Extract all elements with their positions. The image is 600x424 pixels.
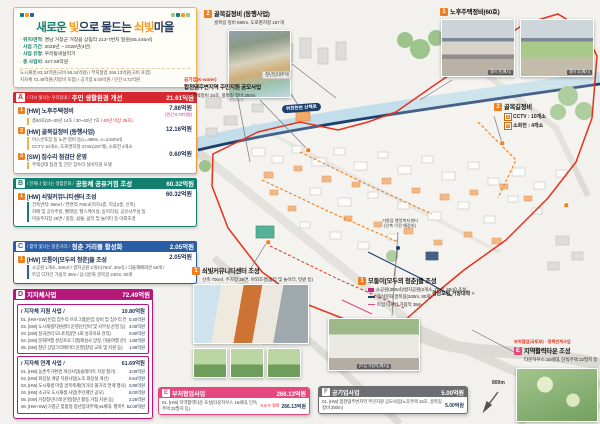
- legend-screen: 트임 디자인 가림막 38m: [368, 302, 466, 308]
- section-c-title: 청춘 거리뜰 활성화: [72, 242, 168, 251]
- section-b-total: 60.32억원: [166, 179, 194, 188]
- photo-caption: 정비 전(예시): [488, 70, 513, 75]
- callout-title: 쇠빛커뮤니티센터 조성: [202, 266, 259, 275]
- cctv-icon: C: [505, 114, 511, 120]
- project-row: 01. [HW] 합천댐주변지역 주민지원 공모사업(노후주택 15호, 골목길…: [319, 397, 467, 413]
- section-f-title: 공기업사업: [332, 388, 439, 397]
- facility-row: CCCTV : 10개소: [505, 113, 546, 120]
- d-group-linked: / 지자체 연계 사업 /61.69억원 01. [HW] 농촌주거환경 개선사…: [17, 356, 149, 413]
- item-detail: 건축면적: 950㎡ / 연면적 700㎡(지하1층, 지상2층, 신축)카페 …: [27, 202, 192, 222]
- item-amount: 7.86억원(민간 0.72억원): [165, 106, 192, 117]
- info-period: · 사업 기간: 2025년 ~ 2028년(4년): [20, 44, 190, 51]
- section-a-header: A / 다시 빛나는 우리동네 / 주민 생활환경 개선 21.61억원: [13, 92, 197, 103]
- food-alley-swatch: [368, 296, 375, 298]
- callout-alley-facilities: 2 골목길정비 CCCTV : 10개소 소소화전 : 4개소: [494, 102, 546, 129]
- project-item: 3 [SW] 집수리 점검단 운영 0.60억원 주택상태 점검 및 간단 집수…: [18, 152, 192, 169]
- section-b: B / 언제나 빛나는 생활문화 / 공동체 공유거점 조성 60.32억원 1…: [13, 178, 197, 227]
- item-title: [HW] 모퉁이[모두의 청춘]뜰 조성: [27, 255, 167, 264]
- section-d-total: 72.49억원: [122, 290, 150, 299]
- section-c-tagline: / 활력 빛나는 청춘거리 /: [27, 244, 70, 250]
- admin-center-label: 거창읍 행정복지센터(신축 이전 예정지): [358, 218, 442, 229]
- photo-caption: 정비 후(예시): [567, 70, 592, 75]
- section-f-header: F 공기업사업 5.00억원: [319, 387, 467, 397]
- callout-title: 노후주택정비(60호): [450, 7, 500, 16]
- callout-subtitle: 골목길 정비 590m, 도로명지정 187개: [214, 20, 284, 26]
- hydrant-icon: 소: [505, 123, 511, 129]
- section-c: C / 활력 빛나는 청춘거리 / 청춘 거리뜰 활성화 2.05억원 1 [H…: [13, 241, 197, 284]
- section-d-title: 지자체사업: [27, 290, 120, 299]
- group-name: / 지자체 연계 사업 /: [21, 359, 65, 367]
- park-swatch: [368, 288, 374, 292]
- section-b-tagline: / 언제나 빛나는 생활문화 /: [27, 181, 74, 187]
- section-e-title: 부처협업사업: [172, 389, 275, 398]
- section-c-header: C / 활력 빛나는 청춘거리 / 청춘 거리뜰 활성화 2.05억원: [13, 241, 197, 252]
- callout-alley-improvement: 2 골목길정비 (동행사업) 골목길 정비 590m, 도로명지정 187개: [204, 9, 284, 26]
- callout-number: 1: [192, 267, 200, 275]
- group-name: / 지자체 지원 사업 /: [21, 307, 65, 315]
- budget-breakdown: 도시재생 83.34억원(국비 58.34억원) / 부처협업 266.13억원…: [20, 68, 190, 83]
- housing-after-photo: 정비 후(예시): [520, 19, 594, 77]
- callout-motungi-garden: 1 모퉁이[모두의 청춘]뜰 조성 소공원(300㎡)/쌈지공원(2개소, 78…: [358, 276, 466, 308]
- item-detail: 주택상태 점검 및 간단 집수리 실비지원 모델: [27, 162, 192, 169]
- callout-subtitle: 신축 700㎡, 주차장 25면, 야외조경(쉼터 및 놀이터, 텃밭 등): [202, 277, 313, 283]
- village-icon-left: [20, 13, 34, 17]
- section-e-badge: E: [162, 389, 170, 397]
- callout-kwater: 공기업(K-water) 합천댐주변지역 주민지원 공모사업 노후주택정비 15…: [184, 77, 261, 99]
- group-total: 10.80억원: [122, 307, 145, 315]
- screen-swatch: [368, 304, 375, 306]
- ministry-stamp: 국토부 협업: [260, 402, 280, 409]
- landscape-photo: [267, 348, 301, 378]
- group-total: 61.69억원: [122, 359, 145, 367]
- project-item: 1 [HW] 쇠빛커뮤니티센터 조성 60.32억원 건축면적: 950㎡ / …: [18, 192, 192, 222]
- item-number: 1: [18, 193, 25, 200]
- section-f: F 공기업사업 5.00억원 01. [HW] 합천댐주변지역 주민지원 공모사…: [318, 386, 468, 414]
- item-detail: 아스콘포장 등 노면 정비 등(L=498m, A=2,840㎡)CCTV 10…: [27, 137, 192, 151]
- page-title: 새로운 빛으로 물드는 쇠빛마을: [20, 19, 190, 35]
- mural-photo: [트임 가림막(예시)]: [328, 318, 420, 371]
- project-row: 03. [SW] 성과관리 모니터링(연 1회 성과지표 관리)0.80억원: [21, 330, 145, 337]
- project-row: 01. [HW+SW] 빈집 집수리 프로그램(빈집 정비 및 집수리 연계 등…: [21, 316, 145, 323]
- section-f-total: 5.00억원: [441, 388, 464, 397]
- section-d: D 지자체사업 72.49억원 / 지자체 지원 사업 /10.80억원 01.…: [13, 289, 153, 419]
- facility-row: 소소화전 : 4개소: [505, 122, 546, 129]
- item-amount: 0.60억원: [169, 152, 192, 159]
- callout-housing-renewal: 1 노후주택정비(60호): [440, 7, 500, 16]
- callout-title: 골목길정비 (동행사업): [214, 9, 270, 18]
- project-item: 1 [HW] 노후주택정비 7.86억원(민간 0.72억원) 총60호(20~…: [18, 106, 192, 125]
- info-budget: · 총 사업비: 427.68억원: [20, 59, 190, 66]
- callout-number: 2: [494, 103, 502, 111]
- callout-title: 합천댐주변지역 주민지원 공모사업: [184, 83, 261, 91]
- project-row: 05. [SW] 거창청년나래 운영(청년 활동 거점 지원 등)3.25억원: [21, 396, 145, 403]
- vitality-tag: 부처협업(국토부) · 정책연계사업: [514, 339, 597, 345]
- callout-subtitle: 노후주택정비 15호, 골목길 정비 250m: [184, 93, 261, 99]
- item-number: 2: [18, 127, 25, 134]
- project-item: 1 [HW] 모퉁이[모두의 청춘]뜰 조성 2.05억원 소공원 1개소, 3…: [18, 255, 192, 279]
- section-e-total: 266.13억원: [277, 389, 306, 398]
- item-title: [HW] 골목길정비 (동행사업): [27, 127, 164, 136]
- callout-number: 2: [204, 10, 212, 18]
- callout-title: 모퉁이[모두의 청춘]뜰 조성: [368, 276, 436, 285]
- project-row: 05. [SW] 청년 상업크리에이터 운영(창업 교육 및 지원 등)1.80…: [21, 344, 145, 351]
- section-a-tagline: / 다시 빛나는 우리동네 /: [27, 95, 70, 101]
- d-group-support: / 지자체 지원 사업 /10.80억원 01. [HW+SW] 빈집 집수리 …: [17, 304, 149, 354]
- item-amount: 2.05억원: [169, 255, 192, 262]
- title-box: 새로운 빛으로 물드는 쇠빛마을 · 위치/면적: 경남 거창군 거창읍 상림리…: [13, 7, 197, 88]
- vitality-town-aerial: [516, 368, 598, 422]
- callout-number: 1: [358, 277, 366, 285]
- item-title: [HW] 쇠빛커뮤니티센터 조성: [27, 192, 164, 201]
- section-a-badge: A: [16, 93, 25, 102]
- photo-caption: [트임 가림막(예시)]: [357, 364, 391, 369]
- callout-title: 골목길정비: [504, 102, 532, 111]
- project-row: 01. [HW] 농촌주거환경 개선사업(슬레이트 지붕 철거)3.00억원: [21, 368, 145, 375]
- legend-food-alley: 음식문화 골목길(240m, 80개): [368, 294, 466, 300]
- item-title: [SW] 집수리 점검단 운영: [27, 152, 167, 161]
- callout-badge: E: [514, 347, 522, 355]
- project-row: 02. [SW] 도시재생지원센터 운영(인건비 및 사무실 운영 등)4.00…: [21, 323, 145, 330]
- project-row: 04. [HW] 소규모 도시재생 사업(주민제안 공모)8.00억원: [21, 389, 145, 396]
- community-center-render: [193, 284, 309, 344]
- legend-park: 소공원(300㎡)/쌈지공원(2개소, 78㎡, 30㎡) 조성: [368, 287, 466, 293]
- project-row: 03. [HW] 도시재생 마중 골목축제(먹거리·볼거리 연계 행사)0.80…: [21, 382, 145, 389]
- callout-number: 1: [440, 8, 448, 16]
- item-number: 1: [18, 256, 25, 263]
- section-b-badge: B: [16, 179, 25, 188]
- item-amount: 60.32억원: [166, 192, 192, 199]
- section-e: E 부처협업사업 266.13억원 01. [HW] 지역활력타운 조성(타운하…: [158, 387, 310, 415]
- section-a-title: 주민 생활환경 개선: [72, 93, 164, 102]
- callout-subtitle: 타운하우스 16세대, 단독주택 32필지 등: [524, 357, 597, 363]
- section-d-badge: D: [16, 290, 25, 299]
- section-e-header: E 부처협업사업 266.13억원: [159, 388, 309, 398]
- project-row: 01. [HW] 지역활력타운 조성(타운하우스 16세대, 단독주택 32필지…: [159, 398, 309, 414]
- scale-label: 800m: [492, 380, 505, 386]
- project-row: 04. [SW] 문화여행 성장프로그램(해설사 양성, 마을여행 운영 등)1…: [21, 337, 145, 344]
- info-type: · 사업 유형: 우리동네살리기: [20, 51, 190, 58]
- item-detail: 소공원 1개소, 300㎡ / 쌈지공원 2개소(78㎡, 30㎡) / 식물재…: [27, 265, 192, 279]
- section-c-total: 2.05억원: [170, 242, 194, 251]
- landscape-photo: [193, 348, 227, 378]
- section-f-badge: F: [322, 388, 330, 396]
- info-location: · 위치/면적: 경남 거창군 거창읍 상림리 213-7번지 일원(65,44…: [20, 37, 190, 44]
- item-number: 1: [18, 107, 25, 114]
- item-detail: 총60호(20~30년 14호 / 30~40년 7호 / 40년 이상 39호…: [27, 118, 192, 125]
- section-a: A / 다시 빛나는 우리동네 / 주민 생활환경 개선 21.61억원 1 […: [13, 92, 197, 174]
- project-item: 2 [HW] 골목길정비 (동행사업) 12.16억원 아스콘포장 등 노면 정…: [18, 127, 192, 151]
- project-row: 06. [HW+SW] 거창군 맞춤형 청년임대주택(44세대, 행복주택 연계…: [21, 403, 145, 410]
- item-number: 3: [18, 153, 25, 160]
- project-row: 02. [HW] 화장실 개량 지원사업(노후 화장실 개선)0.64억원: [21, 375, 145, 382]
- section-c-badge: C: [16, 242, 25, 251]
- section-b-title: 공동체 공유거점 조성: [76, 179, 165, 188]
- item-amount: 12.16억원: [166, 127, 192, 134]
- housing-before-photo: 정비 전(예시): [441, 19, 515, 77]
- youth-housing-label: 청년임대주택: [262, 71, 292, 79]
- callout-vitality-town: 부처협업(국토부) · 정책연계사업 E 지역활력타운 조성 타운하우스 16세…: [514, 339, 597, 363]
- landscape-photo: [230, 348, 264, 378]
- item-title: [HW] 노후주택정비: [27, 106, 163, 115]
- section-b-header: B / 언제나 빛나는 생활문화 / 공동체 공유거점 조성 60.32억원: [13, 178, 197, 189]
- cross-marker: +: [472, 291, 475, 297]
- village-icon-right: [171, 13, 190, 17]
- section-d-header: D 지자체사업 72.49억원: [13, 289, 153, 300]
- callout-community-center: 1 쇠빛커뮤니티센터 조성 신축 700㎡, 주차장 25면, 야외조경(쉼터 …: [192, 266, 313, 283]
- callout-title: 지역활력타운 조성: [524, 346, 570, 355]
